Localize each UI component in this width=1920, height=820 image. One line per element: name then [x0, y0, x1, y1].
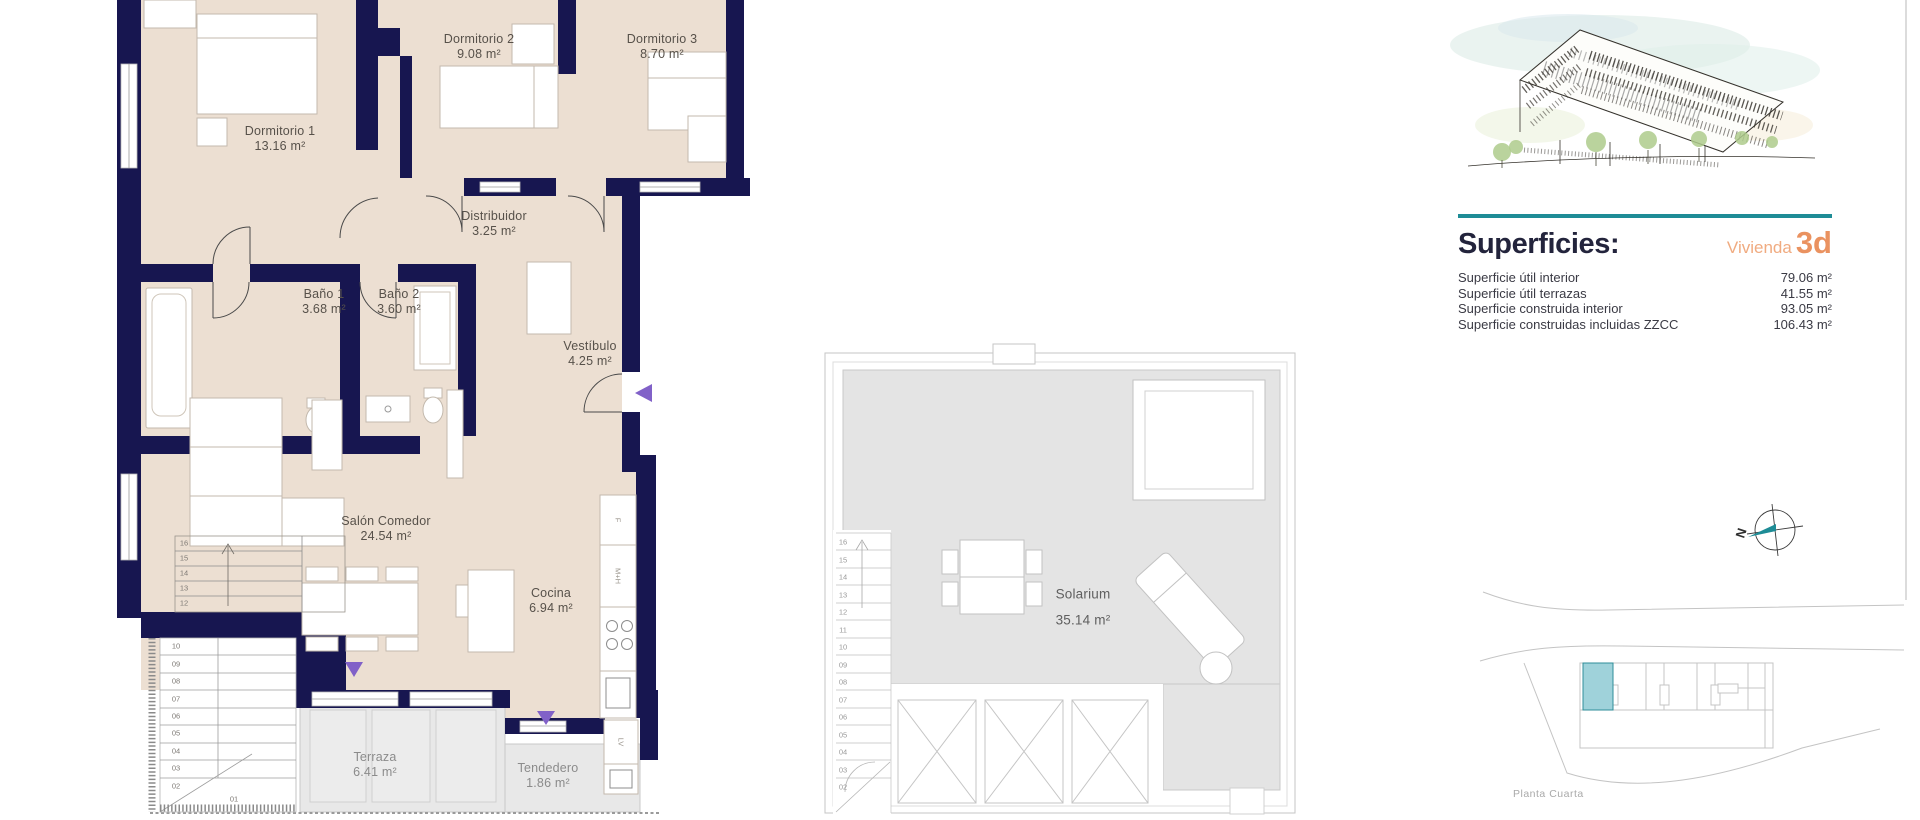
bed-dorm2: [440, 66, 558, 128]
stair-step-number: 05: [172, 729, 180, 738]
stair-step-number: 13: [839, 591, 847, 600]
stair-step-number: 02: [172, 782, 180, 791]
room-label-cocina: Cocina 6.94 m²: [529, 586, 573, 616]
room-label-tendedero: Tendedero 1.86 m²: [518, 761, 579, 791]
stair-step-number: 07: [839, 696, 847, 705]
skylight-opening: [1133, 380, 1265, 500]
stair-step-number: 09: [839, 661, 847, 670]
surface-row: Superficie útil interior 79.06 m²: [1458, 270, 1832, 286]
room-label-dormitorio-1: Dormitorio 1 13.16 m²: [245, 124, 315, 154]
panel-title: Superficies:: [1458, 228, 1619, 261]
plan-sheet: Dormitorio 1 13.16 m² Dormitorio 2 9.08 …: [0, 0, 1920, 820]
room-label-solarium: Solarium 35.14 m²: [1056, 587, 1111, 628]
room-label-vestibulo: Vestíbulo 4.25 m²: [563, 339, 616, 369]
stair-step-number: 10: [172, 642, 180, 651]
superficies-panel: Superficies: Vivienda3d Superficie útil …: [1458, 214, 1832, 332]
surface-row: Superficie construida interior 93.05 m²: [1458, 301, 1832, 317]
teal-divider: [1458, 214, 1832, 218]
stair-step-number: 13: [180, 584, 188, 593]
kitchen-island: [468, 570, 514, 652]
stair-step-number: 14: [839, 573, 847, 582]
stair-step-number: 02: [839, 783, 847, 792]
unit-code: 3d: [1796, 225, 1832, 260]
side-table: [1200, 652, 1232, 684]
stair-step-number: 10: [839, 643, 847, 652]
room-label-bano-1: Baño 1 3.68 m²: [302, 287, 346, 317]
toilet-2: [423, 397, 443, 423]
surface-row: Superficie útil terrazas 41.55 m²: [1458, 286, 1832, 302]
stair-step-number: 07: [172, 695, 180, 704]
stair-step-number: 08: [172, 677, 180, 686]
stair-step-number: 14: [180, 569, 188, 578]
stair-step-number: 04: [172, 747, 180, 756]
bed-dorm1: [197, 14, 317, 114]
stair-step-number: 16: [839, 538, 847, 547]
site-highlighted-unit: [1583, 663, 1613, 710]
stair-step-number: 16: [180, 539, 188, 548]
room-label-distribuidor: Distribuidor 3.25 m²: [461, 209, 527, 239]
cooktop: [600, 607, 636, 671]
building-illustration: [1450, 14, 1820, 168]
floorplan-graphics: [0, 0, 1920, 820]
stair-step-number: 06: [839, 713, 847, 722]
stair-step-number: 15: [839, 556, 847, 565]
dining-table: [302, 583, 418, 635]
stair-step-number: 12: [839, 608, 847, 617]
stair-step-number: 03: [839, 766, 847, 775]
oven-microwave-label: M+H: [614, 568, 623, 584]
bathtub: [146, 288, 192, 428]
stair-step-number: 03: [172, 764, 180, 773]
surface-rows: Superficie útil interior 79.06 m² Superf…: [1458, 270, 1832, 332]
site-plan-caption: Planta Cuarta: [1513, 788, 1584, 800]
sofa: [190, 398, 282, 546]
solarium-plan: [825, 344, 1295, 814]
fridge-label: F: [614, 518, 623, 523]
stair-step-number: 05: [839, 731, 847, 740]
stair-step-number: 12: [180, 599, 188, 608]
room-label-dormitorio-2: Dormitorio 2 9.08 m²: [444, 32, 514, 62]
vanity-2: [366, 396, 410, 422]
room-label-dormitorio-3: Dormitorio 3 8.70 m²: [627, 32, 697, 62]
stair-step-number: 06: [172, 712, 180, 721]
washer-label: LV: [617, 738, 626, 747]
stair-step-number: 15: [180, 554, 188, 563]
room-label-bano-2: Baño 2 3.60 m²: [377, 287, 421, 317]
room-label-salon-comedor: Salón Comedor 24.54 m²: [341, 514, 430, 544]
north-needle: [1748, 524, 1776, 537]
stair-step-number: 11: [839, 626, 847, 635]
main-plan: [117, 0, 750, 813]
stair-step-number: 04: [839, 748, 847, 757]
stair-step-number: 01: [230, 795, 238, 804]
room-label-terraza: Terraza 6.41 m²: [353, 750, 397, 780]
stair-step-number: 09: [172, 660, 180, 669]
stair-step-number: 08: [839, 678, 847, 687]
site-plan: [1480, 592, 1904, 783]
compass-icon: [1747, 504, 1803, 556]
surface-row: Superficie construidas incluidas ZZCC 10…: [1458, 317, 1832, 333]
unit-identifier: Vivienda3d: [1727, 225, 1832, 261]
